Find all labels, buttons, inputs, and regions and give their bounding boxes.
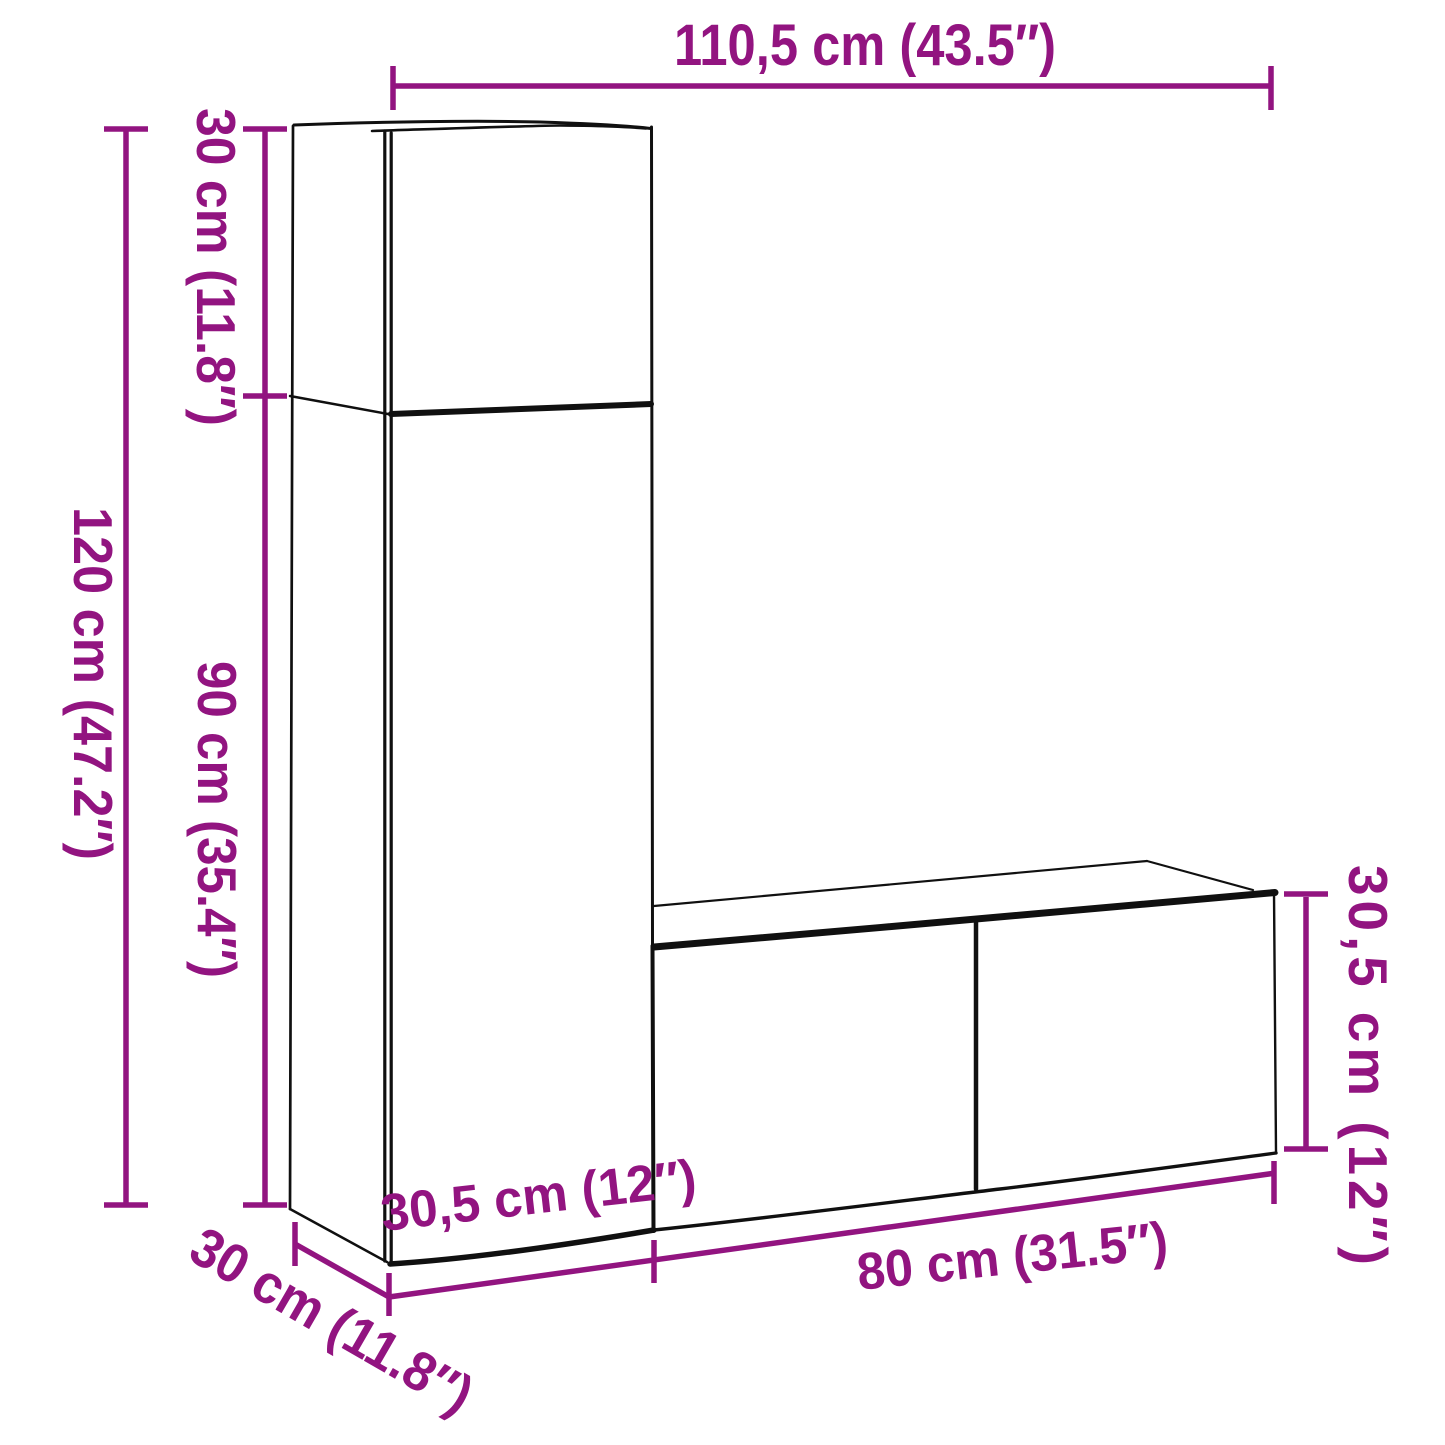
svg-text:110,5 cm (43.5″): 110,5 cm (43.5″) xyxy=(674,13,1056,78)
svg-text:30,5 cm (12″): 30,5 cm (12″) xyxy=(1337,865,1399,1265)
svg-text:90 cm (35.4″): 90 cm (35.4″) xyxy=(186,661,248,978)
svg-text:30 cm (11.8″): 30 cm (11.8″) xyxy=(185,108,247,426)
svg-text:120 cm (47.2″): 120 cm (47.2″) xyxy=(62,507,124,860)
